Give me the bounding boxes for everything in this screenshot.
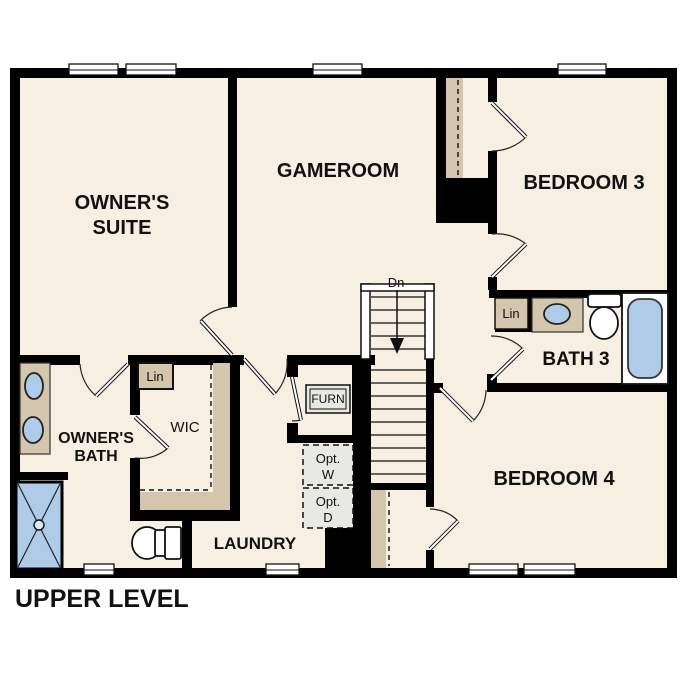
window (469, 564, 518, 575)
window (524, 564, 575, 575)
stairs-dn-label: Dn (388, 275, 405, 290)
bath3-toilet (588, 294, 621, 339)
owners-suite-label2: SUITE (93, 217, 152, 239)
bedroom3-label: BEDROOM 3 (523, 172, 644, 194)
chase-block (436, 178, 497, 223)
gameroom-label: GAMEROOM (277, 160, 399, 182)
opt-dryer-label: Opt. (316, 494, 341, 509)
plan-title: UPPER LEVEL (15, 585, 189, 613)
attic-chase (446, 78, 463, 178)
bath3-label: BATH 3 (542, 349, 609, 370)
opt-washer-label2: W (322, 467, 335, 482)
stair-rail (425, 284, 434, 359)
linen-bath3-label: Lin (502, 306, 519, 321)
shower (16, 482, 62, 569)
stair-rail (361, 284, 370, 359)
owners-bath-vanity (20, 363, 50, 454)
chimney-block (325, 528, 371, 568)
opt-washer-label: Opt. (316, 451, 341, 466)
sink (25, 373, 43, 399)
linen-hall-label: Lin (146, 369, 163, 384)
bath3-vanity (532, 298, 583, 332)
floor-plan-drawing: OWNER'S SUITE GAMEROOM BEDROOM 3 BATH 3 … (0, 0, 687, 687)
window (266, 564, 299, 575)
bathtub (622, 293, 668, 384)
owners-bath-label2: BATH (74, 448, 117, 465)
window (126, 64, 176, 75)
opt-dryer-label2: D (323, 510, 332, 525)
window (558, 64, 606, 75)
window (313, 64, 362, 75)
owners-toilet (132, 527, 181, 559)
shower-drain (34, 520, 44, 530)
owners-suite-label: OWNER'S (75, 192, 170, 214)
sink (544, 304, 570, 324)
wic-label: WIC (170, 419, 199, 436)
bedroom4-label: BEDROOM 4 (493, 468, 615, 490)
window (69, 64, 118, 75)
floor-plan-page: OWNER'S SUITE GAMEROOM BEDROOM 3 BATH 3 … (0, 0, 687, 687)
sink (23, 417, 43, 443)
window (84, 564, 114, 575)
owners-bath-label: OWNER'S (58, 430, 134, 447)
furnace-label: FURN (311, 392, 344, 406)
laundry-label: LAUNDRY (214, 534, 297, 553)
